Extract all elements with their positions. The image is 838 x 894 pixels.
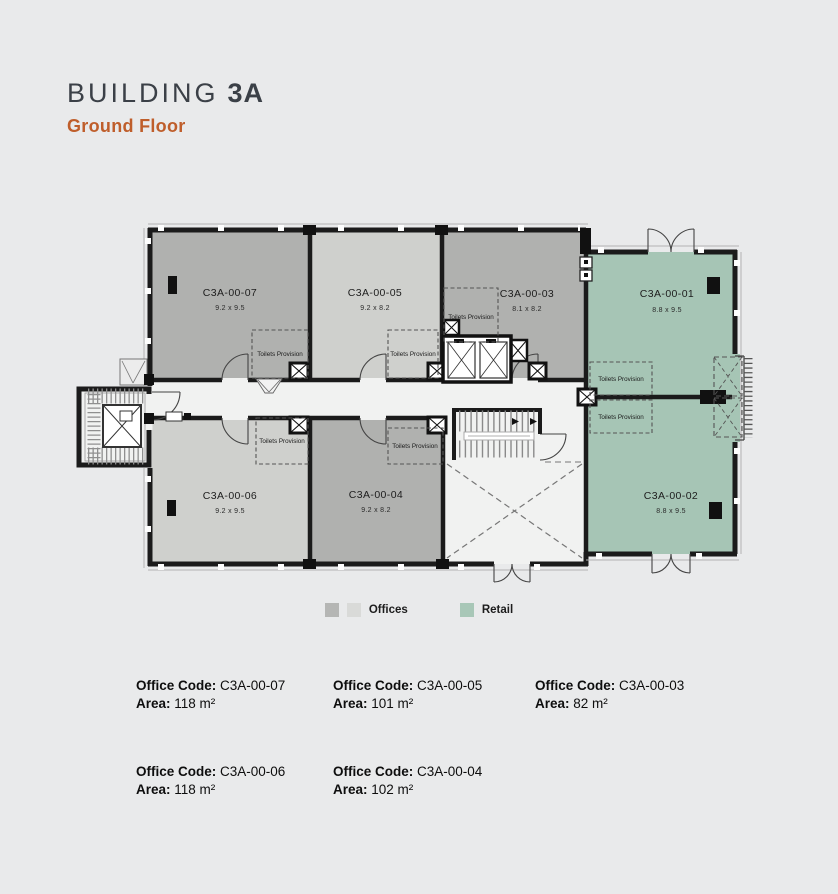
column <box>167 500 176 516</box>
corridor-fixture <box>166 412 182 421</box>
unit-dims: 8.1 x 8.2 <box>512 306 542 313</box>
office-code-label: Office Code: <box>136 764 216 779</box>
office-code-value: C3A-00-05 <box>417 678 482 693</box>
area-label: Area: <box>136 782 171 797</box>
riser-dot <box>584 260 588 264</box>
corridor-fixture <box>120 411 132 421</box>
wall-pillar <box>303 225 316 235</box>
page: BUILDING 3A Ground Floor <box>0 0 838 894</box>
double-door-retail-top <box>648 229 694 252</box>
retail-divider-block <box>700 390 726 404</box>
column <box>709 502 722 519</box>
unit-dims: 9.2 x 8.2 <box>360 305 390 312</box>
unit-code: C3A-00-05 <box>348 287 402 299</box>
retail-swatch <box>460 603 474 617</box>
floor-subtitle: Ground Floor <box>67 116 264 137</box>
office-code-value: C3A-00-06 <box>220 764 285 779</box>
shaft-box <box>444 320 459 335</box>
detail-C3A-00-05: Office Code: C3A-00-05 Area: 101 m² <box>333 677 538 712</box>
unit-code: C3A-00-04 <box>349 489 403 501</box>
toilets-label: Toilets Provision <box>598 376 644 383</box>
unit-code: C3A-00-02 <box>644 490 698 502</box>
detail-C3A-00-06: Office Code: C3A-00-06 Area: 118 m² <box>136 763 341 798</box>
page-title: BUILDING 3A <box>67 78 264 109</box>
unit-dims: 8.8 x 9.5 <box>652 307 682 314</box>
shaft-box <box>290 417 308 433</box>
detail-C3A-00-07: Office Code: C3A-00-07 Area: 118 m² <box>136 677 341 712</box>
toilets-label: Toilets Provision <box>448 314 494 321</box>
office-code-value: C3A-00-04 <box>417 764 482 779</box>
wall-pillar <box>303 559 316 569</box>
column <box>168 276 177 294</box>
office-code-line: Office Code: C3A-00-05 <box>333 677 538 695</box>
wall-pillar <box>580 228 591 254</box>
office-code-label: Office Code: <box>333 764 413 779</box>
unit-dims: 8.8 x 9.5 <box>656 508 686 515</box>
area-value: 118 m² <box>174 696 215 711</box>
unit-code: C3A-00-03 <box>500 288 554 300</box>
legend-offices-label: Offices <box>369 604 408 616</box>
building-number: 3A <box>228 78 265 109</box>
header: BUILDING 3A Ground Floor <box>67 78 264 137</box>
office-code-value: C3A-00-03 <box>619 678 684 693</box>
area-value: 102 m² <box>371 782 413 797</box>
unit-code: C3A-00-01 <box>640 288 694 300</box>
area-line: Area: 118 m² <box>136 781 341 799</box>
area-value: 118 m² <box>174 782 215 797</box>
column <box>707 277 720 294</box>
wall-pillar <box>144 374 154 385</box>
office-code-label: Office Code: <box>535 678 615 693</box>
corridor-fixture <box>184 413 191 420</box>
office-code-line: Office Code: C3A-00-03 <box>535 677 740 695</box>
area-line: Area: 82 m² <box>535 695 740 713</box>
elevator-core <box>443 336 511 382</box>
unit-code: C3A-00-07 <box>203 287 257 299</box>
legend-offices: Offices <box>325 603 408 617</box>
detail-C3A-00-03: Office Code: C3A-00-03 Area: 82 m² <box>535 677 740 712</box>
shaft-box <box>529 363 546 379</box>
toilets-label: Toilets Provision <box>259 438 305 445</box>
shaft-box <box>290 363 308 379</box>
office-code-line: Office Code: C3A-00-06 <box>136 763 341 781</box>
detail-C3A-00-04: Office Code: C3A-00-04 Area: 102 m² <box>333 763 538 798</box>
office-code-label: Office Code: <box>333 678 413 693</box>
area-value: 82 m² <box>573 696 608 711</box>
toilets-label: Toilets Provision <box>392 443 438 450</box>
legend-retail-label: Retail <box>482 604 513 616</box>
shaft-box <box>428 417 446 433</box>
unit-dims: 9.2 x 8.2 <box>361 507 391 514</box>
office-code-line: Office Code: C3A-00-04 <box>333 763 538 781</box>
area-line: Area: 101 m² <box>333 695 538 713</box>
toilets-label: Toilets Provision <box>390 351 436 358</box>
double-door-lobby-bottom <box>494 564 530 582</box>
area-value: 101 m² <box>371 696 413 711</box>
wall-pillar <box>436 559 449 569</box>
area-line: Area: 102 m² <box>333 781 538 799</box>
office-light-swatch <box>347 603 361 617</box>
unit-dims: 9.2 x 9.5 <box>215 508 245 515</box>
shaft-box <box>578 389 596 405</box>
area-label: Area: <box>333 782 368 797</box>
office-code-label: Office Code: <box>136 678 216 693</box>
entry-canopy <box>120 359 147 385</box>
legend: Offices Retail <box>0 603 838 617</box>
area-label: Area: <box>333 696 368 711</box>
legend-retail: Retail <box>460 603 513 617</box>
office-code-line: Office Code: C3A-00-07 <box>136 677 341 695</box>
area-label: Area: <box>535 696 570 711</box>
office-code-value: C3A-00-07 <box>220 678 285 693</box>
floor-plan: Toilets Provision Toilets Provision Toil… <box>65 210 770 590</box>
area-line: Area: 118 m² <box>136 695 341 713</box>
unit-dims: 9.2 x 9.5 <box>215 305 245 312</box>
toilets-label: Toilets Provision <box>598 414 644 421</box>
wall-pillar <box>144 413 154 424</box>
unit-code: C3A-00-06 <box>203 490 257 502</box>
toilets-label: Toilets Provision <box>257 351 303 358</box>
office-dark-swatch <box>325 603 339 617</box>
wall-pillar <box>435 225 448 235</box>
area-label: Area: <box>136 696 171 711</box>
double-door-retail-bottom <box>652 554 690 573</box>
riser-dot <box>584 273 588 277</box>
building-title: BUILDING <box>67 78 219 109</box>
